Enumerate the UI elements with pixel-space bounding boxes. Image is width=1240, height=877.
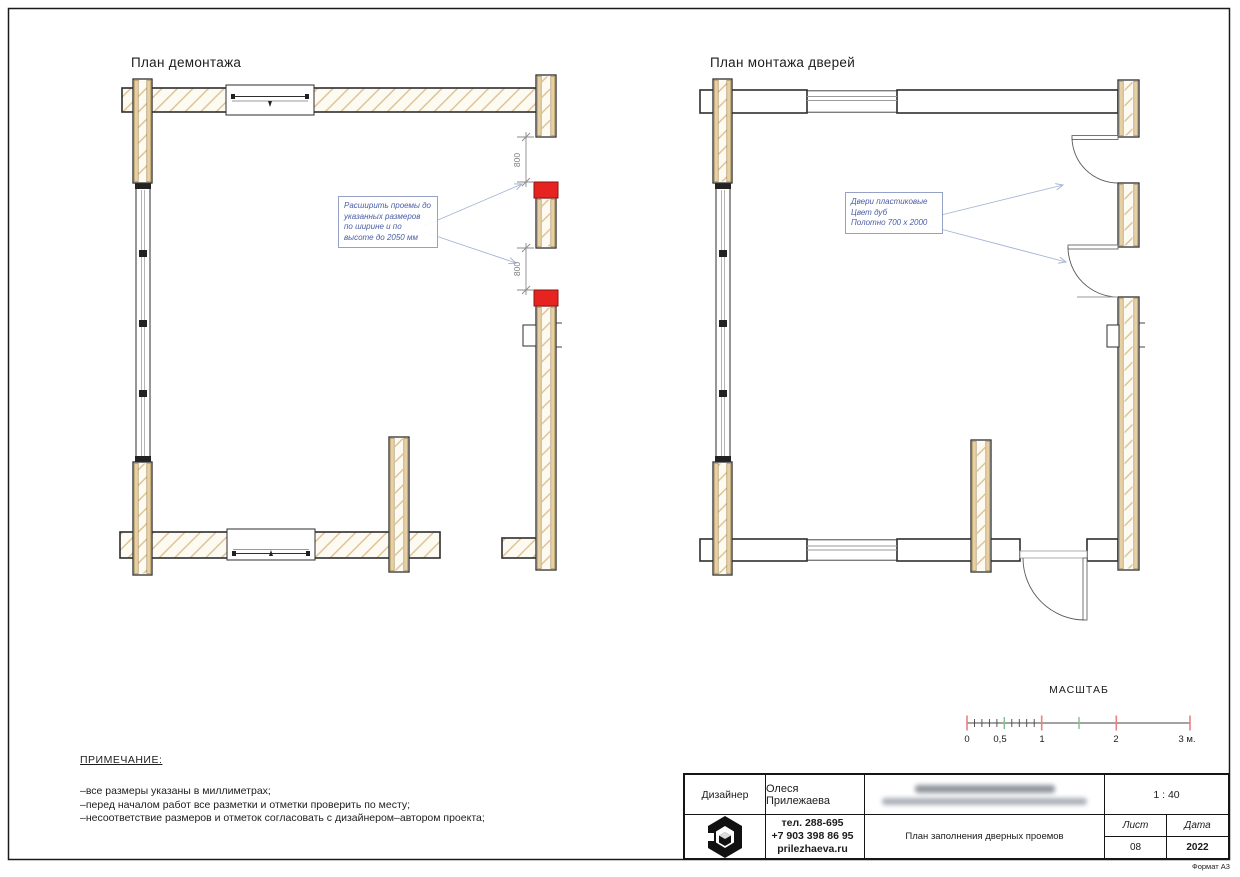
designer-contacts: тел. 288-695 +7 903 398 86 95 prilezhaev…	[765, 815, 864, 858]
sheet-frame	[9, 9, 1230, 860]
sheet-label: Лист	[1104, 815, 1166, 837]
right-wall-top-post	[1118, 80, 1139, 137]
annotation-line: высоте до 2050 мм	[344, 233, 432, 244]
leader-arrow	[929, 185, 1063, 218]
demolition-marker-2	[534, 290, 558, 306]
door-swing-arc	[1068, 247, 1118, 297]
wall-post	[713, 79, 732, 183]
designer-name: Олеся Прилежаева	[765, 775, 864, 815]
note-item: –несоответствие размеров и отметок согла…	[80, 812, 485, 826]
demolition-plan-title: План демонтажа	[131, 55, 241, 70]
installation-annotation-box: Двери пластиковые Цвет дуб Полотно 700 x…	[845, 192, 943, 234]
annotation-line: Полотно 700 x 2000	[851, 218, 937, 229]
drawing-sheet: План демонтажа План монтажа дверей Расши…	[0, 0, 1240, 877]
bottom-wall-stub	[502, 538, 537, 558]
blurred-text	[865, 785, 1104, 805]
door-swing-arc	[1072, 138, 1118, 184]
interior-wall-post	[389, 437, 409, 572]
leader-arrow	[929, 226, 1066, 262]
note-item: –перед началом работ все разметки и отме…	[80, 799, 485, 813]
contact-website[interactable]: prilezhaeva.ru	[777, 843, 848, 856]
scale-value: 1 : 40	[1104, 775, 1228, 815]
bottom-wall	[897, 539, 1020, 561]
right-wall-mid-post	[536, 198, 556, 248]
wall-post	[713, 462, 732, 575]
annotation-line: Цвет дуб	[851, 208, 937, 219]
drawing-title: План заполнения дверных проемов	[864, 815, 1104, 858]
scale-label: 2	[1113, 734, 1118, 745]
annotation-line: Расширить проемы до	[344, 201, 432, 212]
notes-heading: ПРИМЕЧАНИЕ:	[80, 754, 485, 766]
door-bottom	[1020, 551, 1087, 620]
format-label: Формат А3	[1192, 862, 1230, 871]
installation-plan-drawing	[700, 79, 1145, 620]
annotation-line: по ширине и по	[344, 222, 432, 233]
top-wall	[122, 88, 537, 112]
door-swing-arc	[1023, 558, 1085, 620]
door-leaf	[1072, 136, 1118, 140]
date-value: 2022	[1166, 837, 1228, 858]
left-glazed-wall	[135, 183, 151, 462]
designer-logo	[685, 815, 765, 858]
scale-label: 3 м.	[1178, 734, 1195, 745]
sheet-number: 08	[1104, 837, 1166, 858]
scale-label: 0,5	[993, 734, 1006, 745]
dimension-label: 800	[512, 153, 522, 167]
door-leaf	[1083, 558, 1087, 620]
right-wall-mid-post	[1118, 183, 1139, 247]
installation-plan-title: План монтажа дверей	[710, 55, 855, 70]
annotation-line: указанных размеров	[344, 212, 432, 223]
right-wall-long-post	[536, 306, 556, 570]
wall-post	[133, 79, 152, 183]
right-wall-long-post	[1118, 297, 1139, 570]
bottom-window	[807, 540, 897, 560]
title-block: Дизайнер Олеся Прилежаева 1 : 40 тел. 28…	[683, 773, 1230, 860]
contact-phone: тел. 288-695	[781, 817, 843, 830]
demolition-annotation-box: Расширить проемы до указанных размеров п…	[338, 196, 438, 248]
demolition-marker-1	[534, 182, 558, 198]
note-item: –все размеры указаны в миллиметрах;	[80, 785, 485, 799]
notes-section: ПРИМЕЧАНИЕ: –все размеры указаны в милли…	[80, 754, 485, 826]
dimension-label: 800	[512, 262, 522, 276]
floor-plan-linework	[0, 0, 1240, 877]
leader-arrow	[424, 184, 522, 226]
top-wall	[897, 90, 1118, 113]
hexagon-cube-logo-icon	[705, 815, 745, 859]
interior-wall-post	[971, 440, 991, 572]
project-info-blurred	[864, 775, 1104, 815]
bottom-window	[227, 529, 315, 560]
date-label: Дата	[1166, 815, 1228, 837]
designer-label: Дизайнер	[685, 775, 765, 815]
scale-label: 1	[1039, 734, 1044, 745]
scale-label: 0	[964, 734, 969, 745]
top-window	[226, 85, 314, 115]
door-right-lower	[1068, 245, 1118, 297]
top-window	[807, 91, 897, 112]
door-leaf	[1068, 245, 1118, 249]
door-right-upper	[1072, 136, 1118, 184]
left-glazed-wall	[715, 183, 731, 462]
demolition-plan-drawing	[120, 75, 562, 575]
scale-bar-title: МАСШТАБ	[1049, 684, 1109, 696]
wall-post	[133, 462, 152, 575]
scale-bar	[967, 716, 1190, 731]
right-wall-top-post	[536, 75, 556, 137]
contact-mobile: +7 903 398 86 95	[771, 830, 853, 843]
annotation-line: Двери пластиковые	[851, 197, 937, 208]
bottom-wall	[1087, 539, 1118, 561]
